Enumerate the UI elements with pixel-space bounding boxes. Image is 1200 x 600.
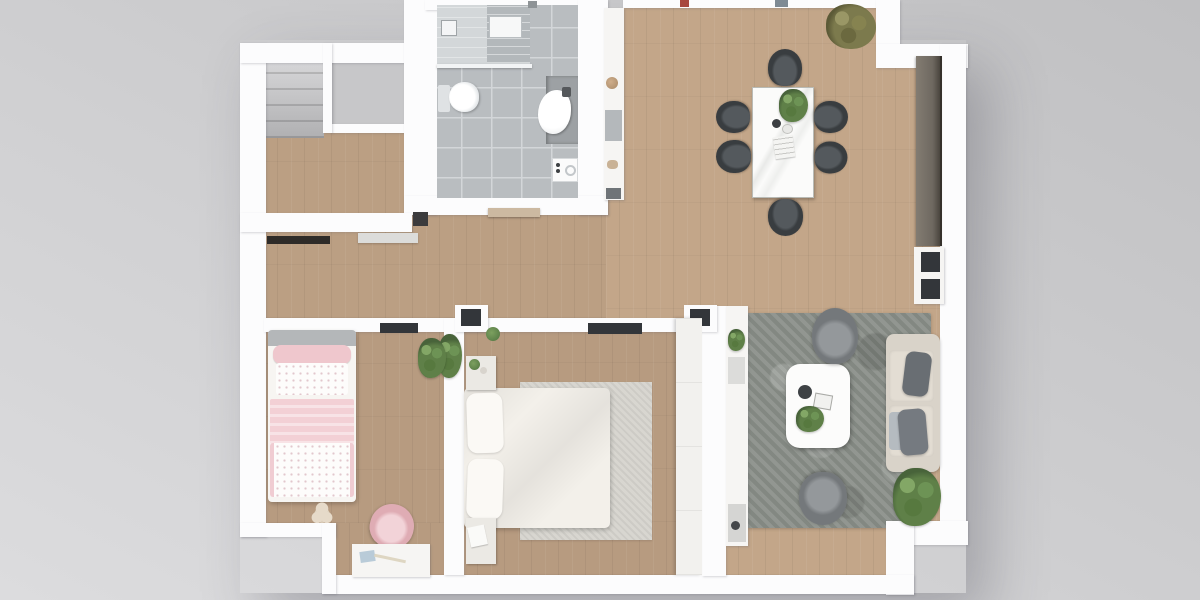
dining-chair-east1 (814, 101, 848, 133)
closet-unit-top (331, 58, 408, 126)
bathroom-door-leaf (488, 208, 540, 217)
sink-faucet (562, 87, 571, 97)
wall-leg-bottomleft (322, 523, 336, 594)
media-unit-plant (728, 329, 745, 351)
dining-table-papers (773, 135, 796, 160)
counter-item-dark (606, 188, 621, 199)
washer-buttons (556, 163, 560, 167)
wall-notch-vertical (876, 0, 900, 50)
washer-door (565, 165, 576, 176)
dining-table-dish (782, 124, 793, 134)
coffee-table-plate (798, 385, 812, 399)
washing-machine (552, 158, 578, 182)
windowsill-deco-red (680, 0, 689, 7)
dining-table-cup (772, 119, 781, 128)
teddy-bear (310, 500, 334, 525)
armchair-south (799, 472, 847, 525)
dining-chair-west1 (716, 101, 750, 133)
sofa-pillow-top (901, 351, 932, 398)
dining-chair-north (768, 49, 802, 86)
kids-wall-shelf (380, 323, 418, 333)
bathroom-top-item (528, 1, 537, 8)
master-pillow-bottom (466, 458, 504, 519)
floor-plan-render (0, 0, 1200, 600)
dining-corner-plant (826, 4, 876, 49)
kids-bed-headboard (268, 330, 356, 346)
counter-item (607, 160, 618, 169)
shower-fixture (441, 20, 457, 36)
wall-entry-bottom (240, 213, 412, 232)
kids-pillow-pink (273, 345, 351, 364)
wall-outer-left (240, 43, 266, 537)
dining-chair-east2 (815, 142, 848, 174)
kids-pillow-dotted (276, 363, 348, 395)
wall-bathroom-left (404, 0, 437, 215)
kitchenette-counter (604, 8, 624, 200)
dining-chair-south (768, 199, 803, 236)
nightstand-north-plant (469, 359, 480, 370)
toilet-bowl (449, 82, 479, 112)
armchair-north (812, 308, 858, 364)
master-wardrobe (676, 318, 702, 575)
closet-front-panel (331, 124, 408, 133)
kids-duvet-pink-band (270, 399, 354, 444)
media-unit-shelf (728, 357, 745, 384)
media-unit-dot (731, 521, 740, 530)
wall-outer-bottom (322, 575, 914, 594)
floor-vent (413, 212, 428, 226)
window-unit-pane-a (921, 252, 940, 272)
wall-closet-divider (323, 43, 332, 133)
hall-bench (358, 233, 418, 243)
pillar-west-inset (461, 309, 481, 326)
sideboard (916, 56, 942, 246)
kids-duvet-dotted (270, 443, 354, 497)
master-wall-tv (588, 323, 642, 334)
shower-shelf (489, 16, 522, 38)
wall-master-east (702, 306, 726, 576)
master-pillow-top (466, 392, 504, 453)
dining-chair-west2 (716, 140, 751, 173)
sofa-pillow-bottom (897, 408, 929, 456)
windowsill-deco-blue (775, 0, 788, 7)
counter-sink-panel (605, 110, 622, 141)
nightstand-north-cup (480, 367, 487, 374)
staircase (266, 58, 324, 138)
counter-plant (606, 77, 618, 89)
corridor-small-plant (486, 327, 500, 341)
window-unit-pane-b (921, 279, 940, 299)
console-table (267, 236, 330, 244)
shower-glass-edge (437, 64, 532, 68)
